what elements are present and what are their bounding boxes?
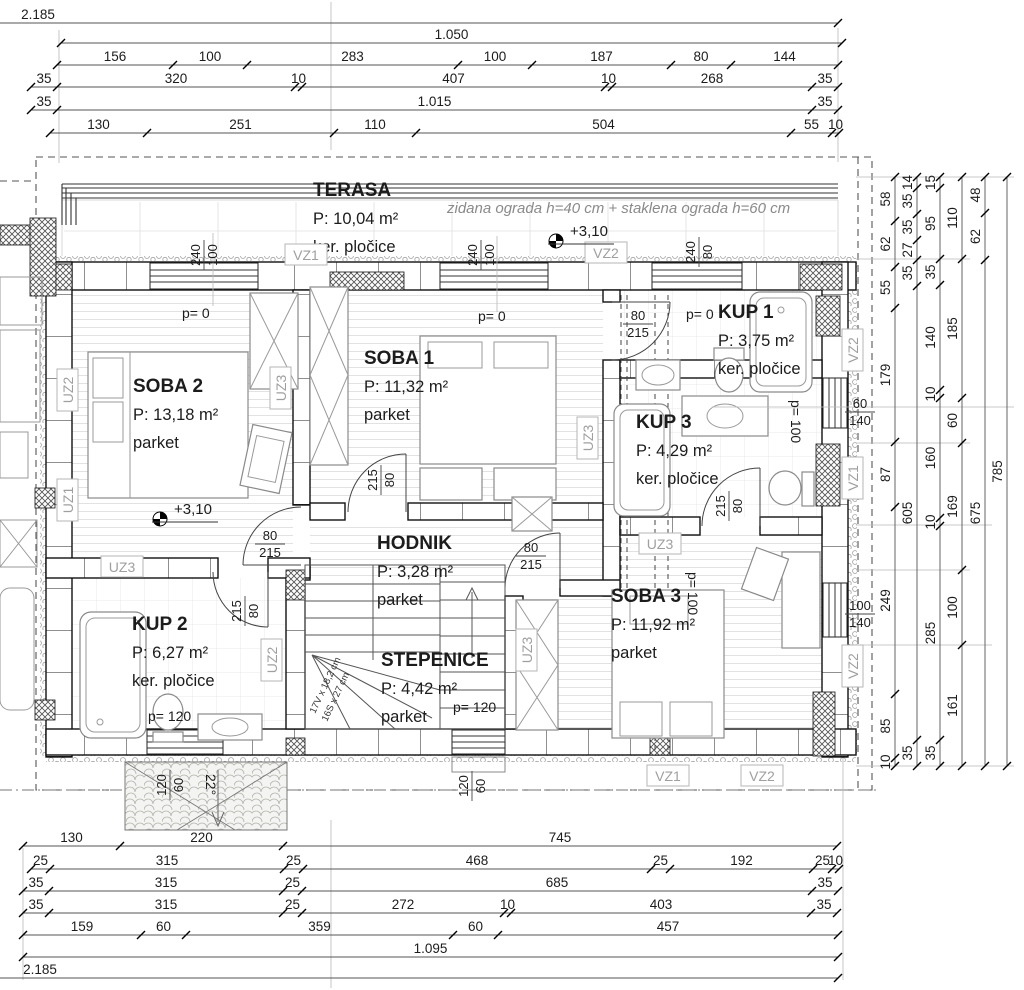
wall-type-label: UZ3 [270,367,291,409]
annotation: 22° [203,774,219,795]
dim-width: 80 [524,540,538,555]
dim-value: 10 [878,754,893,769]
dim-value: 160 [923,447,938,470]
wall-type-label: UZ1 [57,479,78,521]
dim-value: 169 [945,495,960,518]
room-area: P: 4,42 m² [381,680,458,698]
dim-value: 268 [701,71,724,86]
dim-value: 100 [484,49,507,64]
dim-width: 240 [188,244,203,266]
wall-type-label: VZ2 [741,765,783,786]
dim-value: 359 [308,919,331,934]
wall-type-label: UZ3 [516,629,537,671]
dim-value: 35 [817,94,832,109]
dim-value: 457 [657,919,680,934]
sink-kup1 [636,360,680,390]
dim-value: 2.185 [21,7,55,22]
room-floor: parket [381,708,427,726]
dim-value: 1.050 [435,27,469,42]
dim-value: 1.015 [418,94,452,109]
bed-soba2 [88,352,248,498]
dim-value: 87 [878,467,893,482]
window-east-upper [823,378,847,428]
dim-value: 60 [945,413,960,428]
room-floor: parket [133,434,179,452]
dim-height: 80 [730,499,745,513]
window-terrace-2 [440,263,548,289]
canopy [125,762,287,830]
dim-height: 140 [849,413,871,428]
wall-type-text: UZ3 [580,425,596,452]
dim-value: 272 [392,897,415,912]
dim-value: 25 [285,875,300,890]
dim-width: 215 [365,469,380,491]
plaster-strip-left [40,262,46,757]
room-floor: ker. pločice [132,672,215,690]
wall-type-label: VZ1 [647,765,689,786]
dim-height: 80 [382,473,397,487]
dim-value: 35 [28,875,43,890]
annotation: p= 0 [478,308,506,324]
room-name: SOBA 3 [611,586,681,607]
dim-width: 215 [229,600,244,622]
dim-value: 85 [878,718,893,733]
wall-type-text: UZ3 [273,375,289,402]
room-area: P: 11,32 m² [364,378,449,396]
dim-value: 58 [878,191,893,206]
wall-type-text: UZ2 [264,647,280,674]
wall-type-label: VZ2 [842,645,863,687]
plaster-strip-bottom [46,755,856,762]
dim-value: 504 [592,117,615,132]
dim-value: 785 [990,460,1005,483]
wall-type-label: VZ1 [285,244,327,265]
dim-value: 25 [653,853,668,868]
dim-value: 25 [285,897,300,912]
dim-height: 100 [482,244,497,266]
wall-type-label: UZ2 [261,639,282,681]
wall-kup3-south-a [620,517,700,535]
annotation: p= 120 [453,699,496,715]
dim-value: 130 [87,117,110,132]
dim-height: 80 [246,604,261,618]
dim-value: 35 [900,265,915,280]
dim-value: 1.095 [414,941,448,956]
dim-value: 10 [923,386,938,401]
dim-value: 27 [900,242,915,257]
dim-value: 62 [878,236,893,251]
dim-value: 285 [923,622,938,645]
dim-value: 95 [923,216,938,231]
dim-value: 15 [923,175,938,190]
dim-value: 55 [878,280,893,295]
dim-value: 35 [36,71,51,86]
toilet-kup3 [769,471,814,506]
annotation: zidana ograda h=40 cm + staklena ograda … [446,200,790,217]
dim-value: 468 [466,853,489,868]
wardrobe-hodnik [512,497,552,531]
dim-height: 60 [171,778,186,792]
dim-value: 80 [693,49,708,64]
dim-value: 10 [291,71,306,86]
room-floor: ker. pločice [718,360,801,378]
dim-width: 240 [465,244,480,266]
wall-type-label: VZ2 [585,242,627,263]
dim-value: 35 [36,94,51,109]
window-east-lower [823,583,847,637]
dim-width: 80 [631,308,645,323]
dim-width: 120 [456,775,471,797]
dim-value: 110 [945,207,960,229]
opening-dim-pair: 100140 [845,598,875,630]
dim-value: 251 [229,117,252,132]
level-value: +3,10 [174,501,212,518]
annotation: p= 0 [686,306,714,322]
opening-dim-pair: 240100 [188,240,220,270]
dim-value: 315 [155,875,178,890]
wall-type-text: VZ2 [593,245,619,261]
dim-height: 215 [259,545,281,560]
dim-width: 120 [154,774,169,796]
dim-value: 100 [199,49,222,64]
dim-value: 35 [28,897,43,912]
dim-value: 10 [923,514,938,529]
level-value: +3,10 [570,223,608,240]
wall-type-text: UZ3 [109,559,136,575]
room-name: KUP 2 [132,614,188,635]
wall-type-label: UZ3 [577,417,598,459]
wardrobe-wall [310,287,348,465]
wall-type-label: UZ2 [57,369,78,411]
wall-type-label: UZ3 [101,556,143,577]
wall-type-text: UZ2 [60,377,76,404]
room-name: SOBA 1 [364,348,434,369]
dim-value: 55 [804,117,819,132]
room-name: TERASA [313,180,391,201]
dim-value: 283 [341,49,364,64]
room-area: P: 11,92 m² [611,616,696,634]
wall-hodnik-north [408,503,603,520]
dim-value: 745 [549,830,572,845]
dim-value: 403 [650,897,673,912]
dim-value: 156 [104,49,127,64]
wall-type-text: UZ3 [647,536,674,552]
room-name: HODNIK [377,533,452,554]
wall-type-text: VZ1 [655,768,681,784]
dim-width: 100 [849,598,871,613]
room-area: P: 6,27 m² [132,644,209,662]
dim-height: 80 [700,245,715,259]
opening-dim-pair: 240100 [465,240,497,270]
wall-type-label: VZ2 [842,329,863,371]
hodnik-floor [310,520,603,578]
dim-value: 315 [156,853,179,868]
dim-width: 80 [263,528,277,543]
room-floor: parket [611,644,657,662]
dim-value: 10 [828,117,843,132]
annotation: p= 100 [788,400,804,443]
room-name: KUP 1 [718,302,774,323]
wall-type-text: VZ2 [749,768,775,784]
dim-value: 14 [900,175,915,191]
dim-value: 605 [900,502,915,525]
wall-type-text: UZ1 [60,487,76,514]
dim-value: 161 [945,694,960,717]
dim-height: 140 [849,615,871,630]
wall-type-text: VZ2 [845,653,861,679]
dim-value: 25 [33,853,48,868]
dim-value: 407 [442,71,465,86]
dim-value: 35 [900,193,915,208]
floor-plan-svg: 2.1851.050156100283100187801443532010407… [0,0,1024,990]
floor-plan-page: 2.1851.050156100283100187801443532010407… [0,0,1024,990]
dim-value: 130 [60,830,83,845]
wall-kup3-south-b [760,517,822,535]
annotation: p= 120 [148,708,191,724]
room-floor: parket [377,591,423,609]
dim-value: 315 [155,897,178,912]
dim-value: 35 [900,219,915,234]
room-name: SOBA 2 [133,376,203,397]
dim-value: 187 [590,49,613,64]
dim-value: 144 [773,49,796,64]
dim-height: 60 [473,779,488,793]
dim-value: 35 [923,745,938,760]
dim-value: 110 [364,117,386,132]
wall-type-label: VZ1 [842,457,863,499]
room-area: P: 10,04 m² [313,210,399,228]
dim-value: 10 [500,897,515,912]
dim-value: 48 [968,187,983,202]
annotation: p= 0 [182,305,210,321]
wall-stairs-west [286,578,305,729]
dim-value: 35 [817,875,832,890]
wall-type-text: VZ1 [293,247,319,263]
dim-value: 185 [945,317,960,340]
annotation: p= 100 [685,572,701,615]
dim-value: 179 [878,364,893,387]
room-area: P: 3,28 m² [377,563,454,581]
wall-type-text: UZ3 [519,637,535,664]
room-area: P: 4,29 m² [636,442,713,460]
dim-value: 192 [730,853,753,868]
room-name: KUP 3 [636,412,692,433]
dim-value: 685 [546,875,569,890]
dim-value: 62 [968,229,983,244]
room-area: P: 3,75 m² [718,332,795,350]
vanity-kup3 [682,396,768,436]
dim-value: 675 [968,502,983,525]
dim-width: 240 [683,241,698,263]
wall-type-text: VZ2 [845,337,861,363]
dim-value: 220 [190,830,213,845]
dim-value: 249 [878,589,893,612]
dim-width: 60 [853,396,867,411]
dim-height: 215 [627,325,649,340]
dim-value: 10 [828,853,843,868]
dim-value: 60 [156,919,171,934]
room-floor: parket [364,406,410,424]
wall-type-text: VZ1 [845,465,861,491]
dim-value: 60 [468,919,483,934]
dim-value: 35 [816,897,831,912]
wall-type-label: UZ3 [639,533,681,554]
dim-value: 159 [71,919,94,934]
dim-value: 100 [945,596,960,619]
dim-value: 25 [286,853,301,868]
dim-value: 320 [165,71,188,86]
bed-soba3 [612,590,724,738]
dim-value: 2.185 [23,962,57,977]
dim-value: 140 [923,326,938,349]
window-kup1 [652,263,742,289]
dim-value: 35 [923,264,938,279]
dim-value: 10 [601,71,616,86]
room-floor: ker. pločice [636,470,719,488]
room-name: STEPENICE [381,650,489,671]
sink-kup2 [198,714,262,740]
desk-soba3 [782,552,820,648]
dim-height: 100 [205,244,220,266]
dim-width: 215 [713,495,728,517]
room-area: P: 13,18 m² [133,406,219,424]
dim-value: 35 [817,71,832,86]
dim-value: 35 [900,745,915,760]
dim-height: 215 [520,557,542,572]
